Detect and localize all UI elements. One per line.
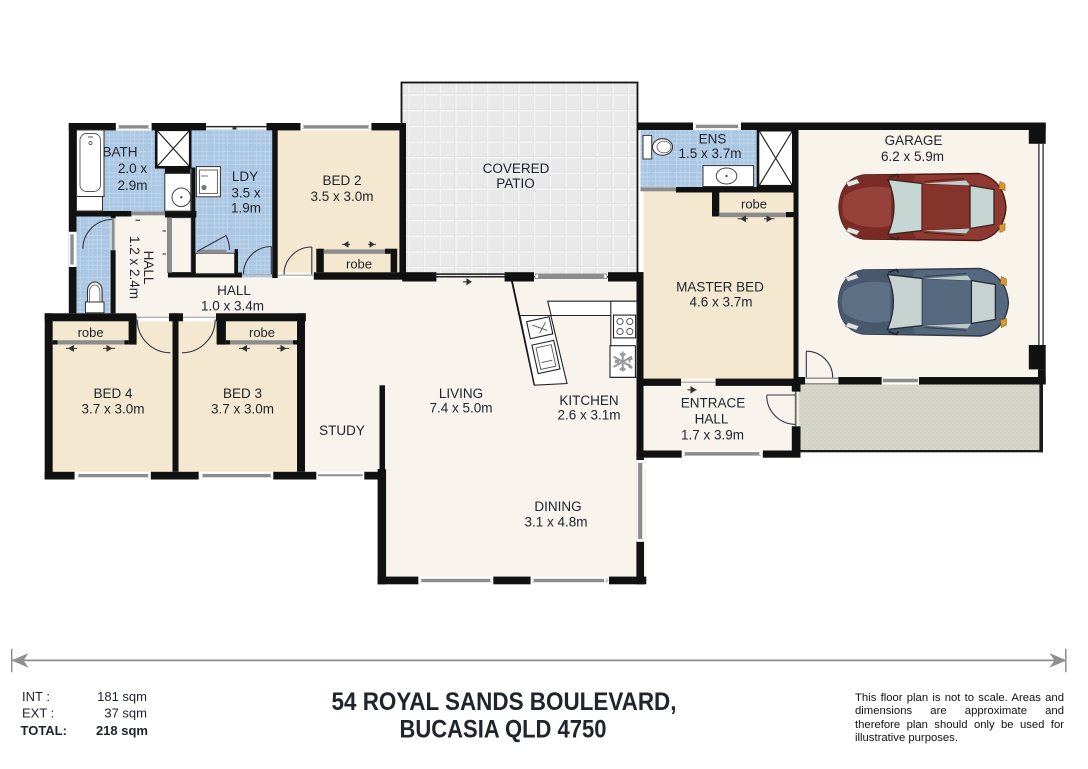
svg-text:2.0 x: 2.0 x [118,161,148,176]
svg-text:EXT :: EXT : [22,706,54,721]
svg-text:3.7 x 3.0m: 3.7 x 3.0m [81,402,144,417]
svg-text:GARAGE: GARAGE [885,133,943,148]
svg-text:KITCHEN: KITCHEN [559,393,618,408]
svg-text:LDY: LDY [232,169,258,184]
svg-text:robe: robe [346,256,372,271]
svg-text:1.9m: 1.9m [231,201,261,216]
svg-text:7.4 x 5.0m: 7.4 x 5.0m [429,401,492,416]
svg-text:HALL: HALL [695,412,729,427]
svg-text:54 ROYAL SANDS BOULEVARD,: 54 ROYAL SANDS BOULEVARD, [332,688,677,716]
svg-text:BED 2: BED 2 [322,173,361,188]
svg-text:1.7 x 3.9m: 1.7 x 3.9m [681,428,744,443]
svg-text:HALL: HALL [141,251,156,285]
svg-text:4.6 x 3.7m: 4.6 x 3.7m [689,295,752,310]
svg-text:3.5 x: 3.5 x [231,185,261,200]
svg-text:DINING: DINING [534,499,581,514]
svg-text:MASTER BED: MASTER BED [676,280,764,295]
svg-text:ENS: ENS [699,131,727,146]
svg-text:BUCASIA QLD 4750: BUCASIA QLD 4750 [400,716,607,744]
svg-text:181 sqm: 181 sqm [97,689,147,704]
svg-text:6.2 x 5.9m: 6.2 x 5.9m [881,149,944,164]
svg-text:robe: robe [249,325,275,340]
svg-text:LIVING: LIVING [439,386,483,401]
svg-text:1.0 x 3.4m: 1.0 x 3.4m [201,298,264,313]
svg-text:1.5 x 3.7m: 1.5 x 3.7m [678,146,741,161]
svg-text:2.6 x 3.1m: 2.6 x 3.1m [557,408,620,423]
svg-text:3.5 x 3.0m: 3.5 x 3.0m [310,189,373,204]
svg-text:HALL: HALL [217,283,251,298]
svg-text:BED 3: BED 3 [223,386,262,401]
svg-text:BATH: BATH [102,144,137,159]
svg-text:TOTAL:: TOTAL: [21,723,67,738]
svg-text:3.7 x 3.0m: 3.7 x 3.0m [211,402,274,417]
svg-text:STUDY: STUDY [319,423,365,438]
svg-text:218 sqm: 218 sqm [96,723,148,738]
svg-text:ENTRACE: ENTRACE [681,396,746,411]
svg-text:PATIO: PATIO [496,176,535,191]
svg-text:robe: robe [741,196,767,211]
svg-text:BED 4: BED 4 [93,386,133,401]
svg-text:INT :: INT : [22,689,50,704]
svg-text:3.1 x 4.8m: 3.1 x 4.8m [524,514,587,529]
svg-text:robe: robe [78,325,104,340]
svg-text:37 sqm: 37 sqm [104,706,147,721]
svg-text:2.9m: 2.9m [117,178,147,193]
svg-text:1.2 x 2.4m: 1.2 x 2.4m [127,236,142,299]
svg-text:COVERED: COVERED [483,161,550,176]
